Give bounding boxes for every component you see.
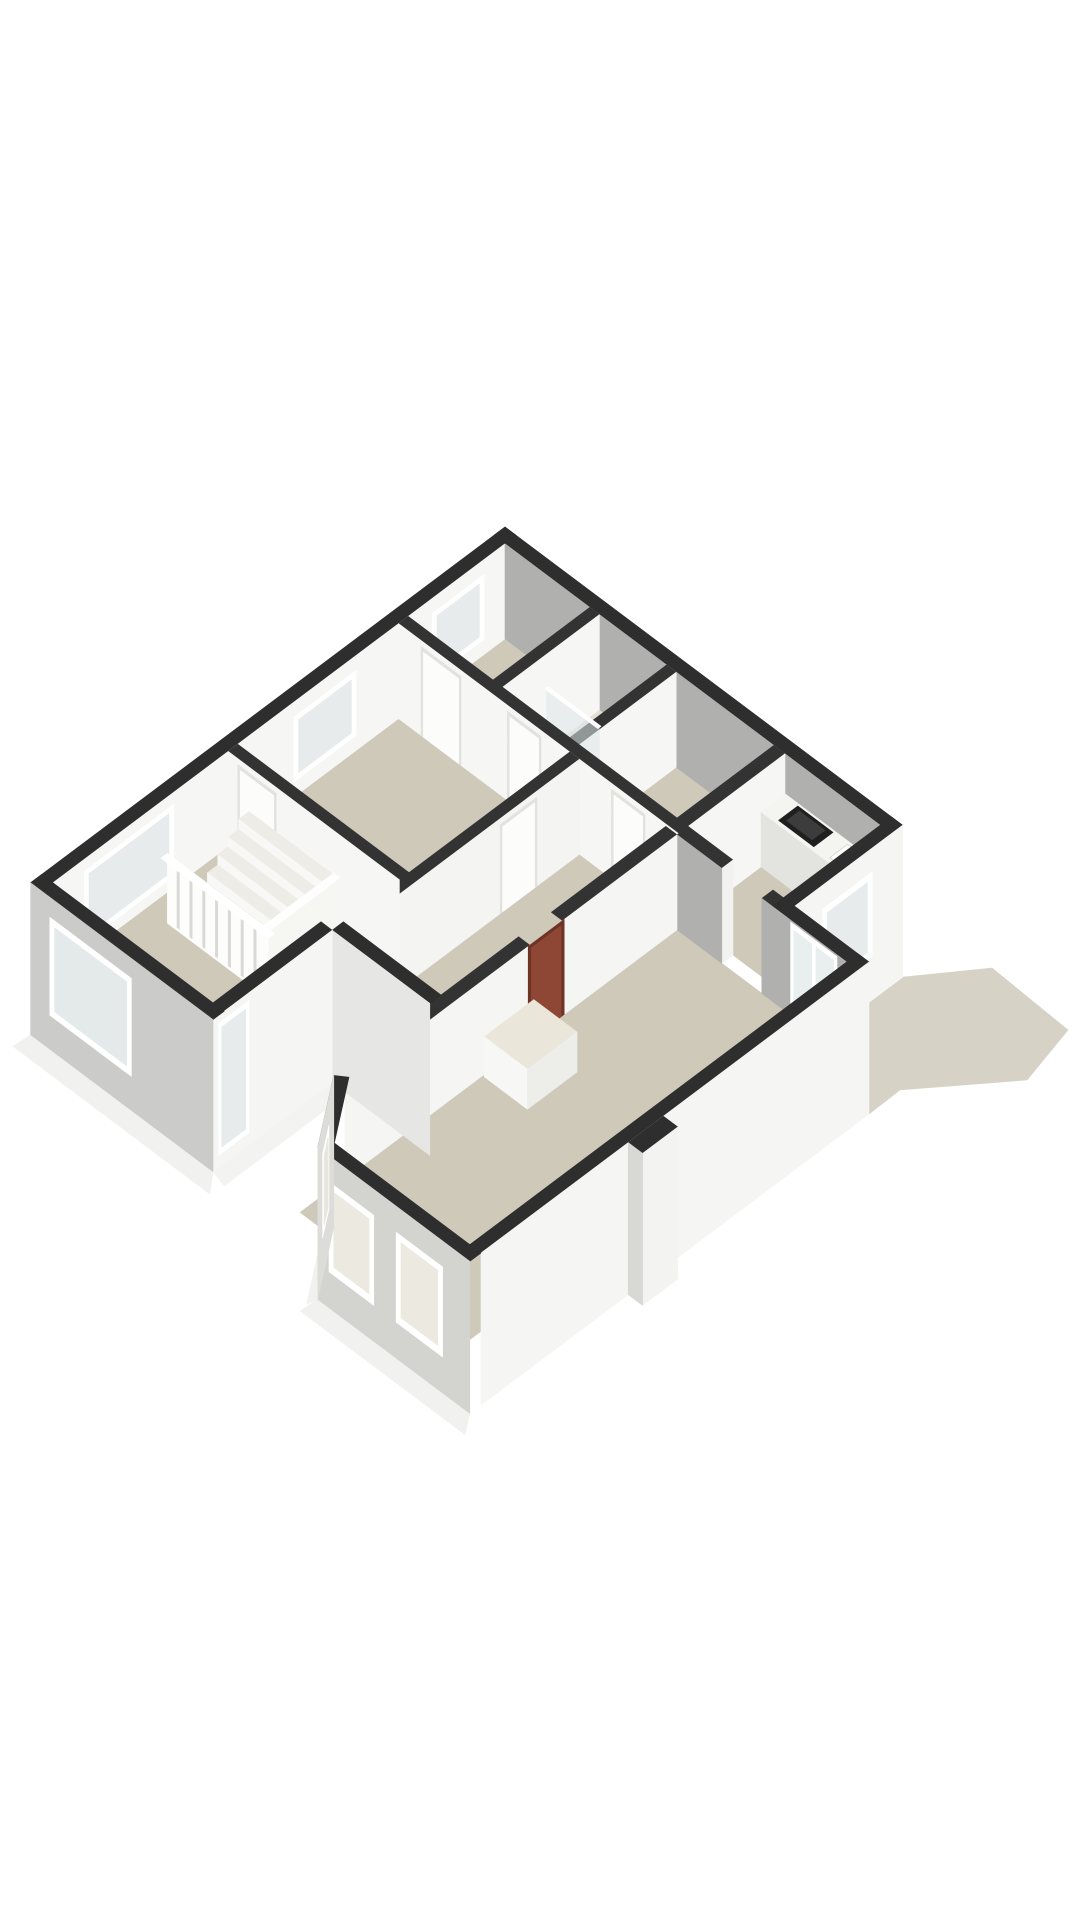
floorplan-page: [0, 0, 1080, 1920]
window-glass: [222, 1009, 246, 1147]
wall-face-interior-shade: [762, 898, 772, 1001]
stair-baluster: [215, 900, 217, 958]
stair-baluster: [177, 871, 179, 929]
stair-baluster: [241, 919, 243, 977]
wall-end-face: [722, 860, 733, 963]
chimney-face-shade: [628, 1143, 642, 1306]
floorplan-image: [0, 0, 1080, 1920]
stair-baluster: [190, 881, 192, 939]
chimney-face-light: [643, 1127, 678, 1305]
stair-baluster: [228, 910, 230, 968]
stair-baluster: [203, 891, 205, 949]
